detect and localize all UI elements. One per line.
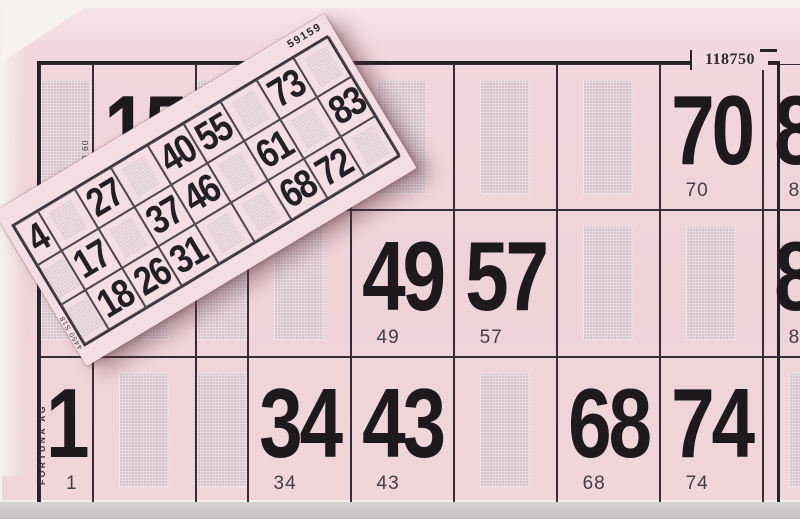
- card-number: 68: [568, 374, 649, 472]
- card-cell-1: 11: [40, 357, 93, 503]
- ticket-blank-shade: [291, 107, 330, 149]
- card-blank-shade: [686, 226, 736, 340]
- ticket-blank-shade: [108, 217, 147, 259]
- card-cell-70: 7070: [660, 64, 763, 210]
- card-small-number: 1: [66, 473, 78, 495]
- card-blank-shade: [480, 373, 530, 487]
- ticket-blank-shade: [241, 191, 280, 233]
- card-number: 1: [46, 374, 86, 472]
- card-small-number: 43: [377, 473, 400, 495]
- card-cell-blank: [660, 210, 763, 356]
- ticket-blank-shade: [205, 212, 244, 254]
- card-number: 74: [671, 374, 752, 472]
- card-cell-blank: [454, 64, 557, 210]
- card-blank-shade: [583, 226, 633, 340]
- card-cell-blank: [454, 357, 557, 503]
- card-cell-blank: [557, 64, 660, 210]
- card-serial-number: 118750: [690, 50, 768, 70]
- card-cell-blank: [763, 357, 800, 503]
- ticket-blank-shade: [351, 125, 390, 167]
- card-left-edge-highlight: [2, 46, 26, 476]
- card-number: 82: [774, 227, 800, 325]
- card-cell-74: 7474: [660, 357, 763, 503]
- card-small-number: 34: [274, 473, 297, 495]
- card-blank-shade: [583, 80, 633, 194]
- card-small-number: 85: [789, 180, 800, 202]
- background-bottom-strip: [0, 502, 800, 519]
- card-number: 70: [671, 81, 752, 179]
- card-small-number: 49: [377, 327, 400, 349]
- card-number: 34: [259, 374, 340, 472]
- card-cell-blank: [93, 357, 196, 503]
- card-cell-blank: [196, 357, 248, 503]
- card-cell-blank: [557, 210, 660, 356]
- card-cell-68: 6868: [557, 357, 660, 503]
- card-blank-shade: [789, 373, 800, 487]
- serial-corner-bracket: [760, 49, 777, 52]
- photo-of-bingo-cards: 1515707085854949575782821134344343686874…: [0, 0, 800, 519]
- card-blank-shade: [480, 80, 530, 194]
- ticket-blank-shade: [48, 199, 87, 241]
- card-small-number: 82: [789, 327, 800, 349]
- card-cell-49: 4949: [351, 210, 454, 356]
- card-small-number: 57: [480, 327, 503, 349]
- card-blank-shade: [119, 373, 169, 487]
- card-number: 85: [774, 81, 800, 179]
- brand-vertical-text: FORTUNA AG: [37, 404, 47, 485]
- card-cell-34: 3434: [248, 357, 351, 503]
- card-cell-85: 8585: [763, 64, 800, 210]
- card-cell-43: 4343: [351, 357, 454, 503]
- card-blank-shade: [197, 373, 247, 487]
- ticket-blank-shade: [218, 151, 257, 193]
- card-number: 43: [362, 374, 443, 472]
- card-small-number: 68: [583, 473, 606, 495]
- ticket-blank-shade: [303, 46, 342, 88]
- card-number: 49: [362, 227, 443, 325]
- ticket-blank-shade: [230, 90, 269, 132]
- card-cell-82: 8282: [763, 210, 800, 356]
- ticket-blank-shade: [121, 155, 160, 197]
- card-small-number: 74: [686, 473, 709, 495]
- card-cell-57: 5757: [454, 210, 557, 356]
- card-small-number: 70: [686, 180, 709, 202]
- card-number: 57: [465, 227, 546, 325]
